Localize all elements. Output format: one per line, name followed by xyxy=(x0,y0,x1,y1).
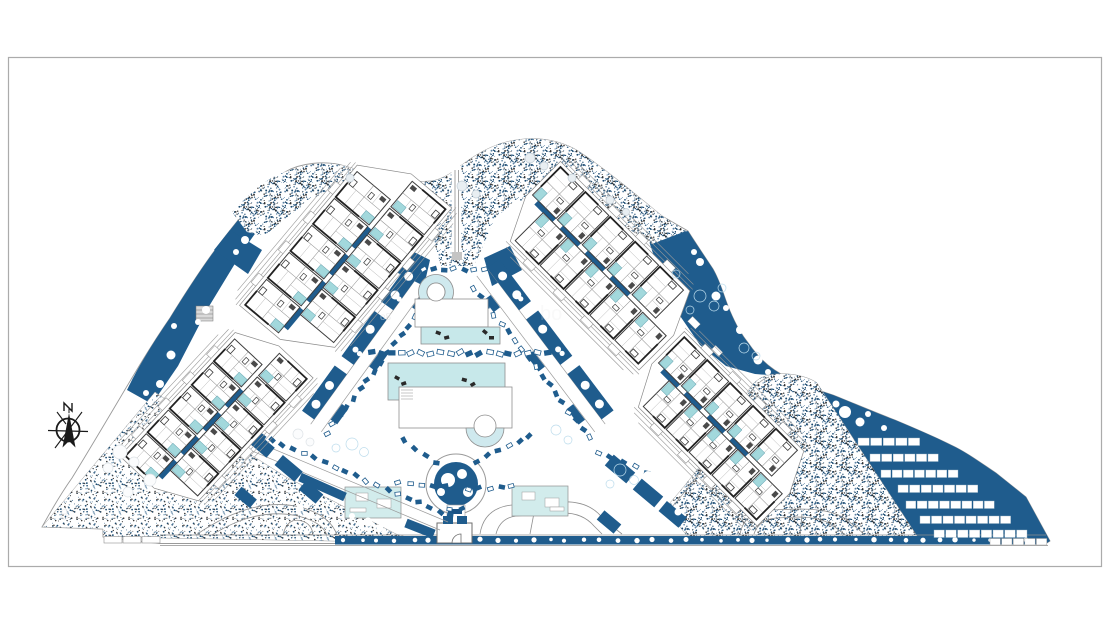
svg-text:o8: o8 xyxy=(380,312,392,323)
svg-text:bo: bo xyxy=(540,303,562,325)
svg-text:8: 8 xyxy=(60,507,69,524)
